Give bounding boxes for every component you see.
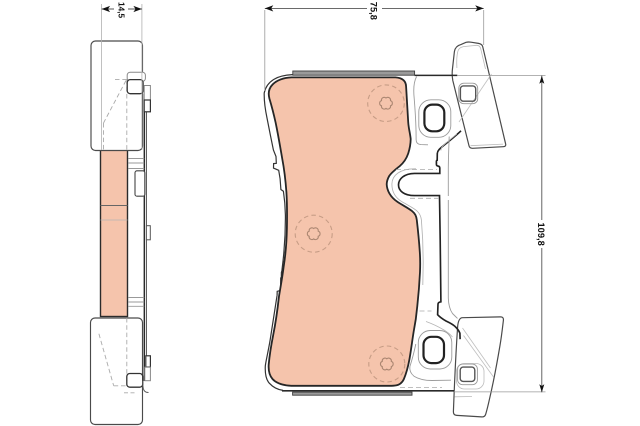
- svg-text:75,8: 75,8: [369, 2, 379, 20]
- svg-text:109,8: 109,8: [536, 223, 546, 246]
- svg-text:14,5: 14,5: [117, 2, 127, 19]
